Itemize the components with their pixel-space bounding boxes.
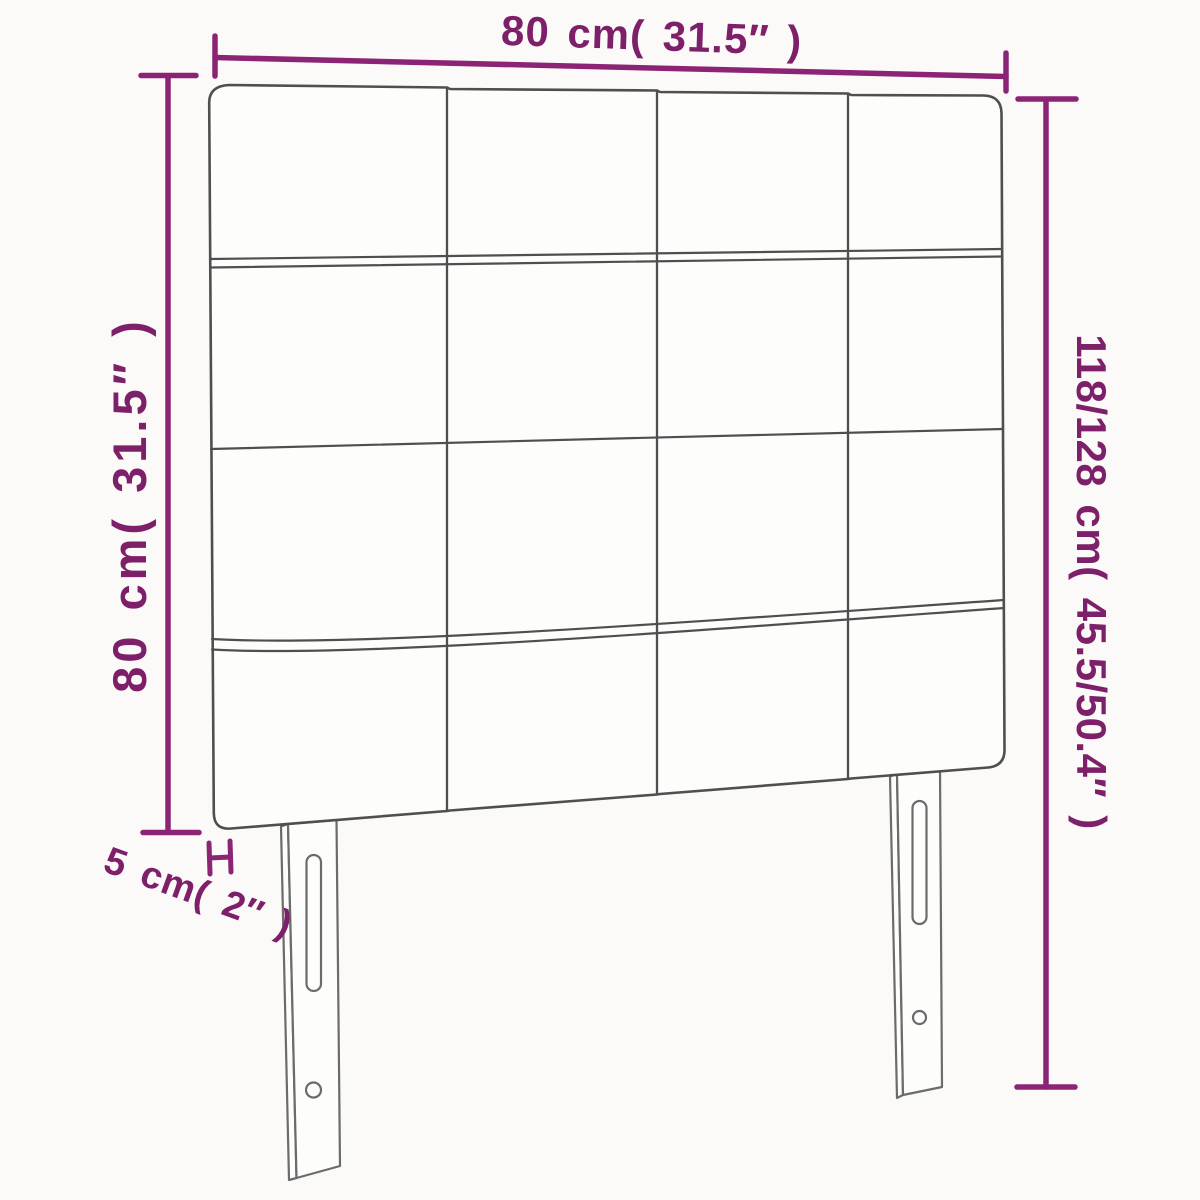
- left-leg-screw-hole: [306, 1083, 321, 1098]
- right-leg-screw-hole: [913, 1011, 926, 1024]
- depth-marker-bracket: [209, 841, 231, 874]
- panel-outline: [209, 85, 1004, 829]
- top-dimension-line: [215, 58, 1006, 77]
- left-height-label: 80 cm( 31.5″ ): [105, 245, 157, 765]
- headboard-panel: [209, 85, 1004, 829]
- headboard-line-drawing: [0, 0, 1200, 1200]
- depth-marker-crossbar: [210, 857, 231, 858]
- top-width-label: 80 cm( 31.5″ ): [500, 9, 801, 64]
- right-leg-slot: [913, 801, 927, 924]
- right-height-label: 118/128 cm( 45.5/50.4″ ): [1061, 302, 1113, 862]
- headboard-legs: [281, 770, 942, 1180]
- left-leg-slot: [307, 855, 322, 991]
- dimension-diagram: 80 cm( 31.5″ ) 80 cm( 31.5″ ) 118/128 cm…: [0, 0, 1200, 1200]
